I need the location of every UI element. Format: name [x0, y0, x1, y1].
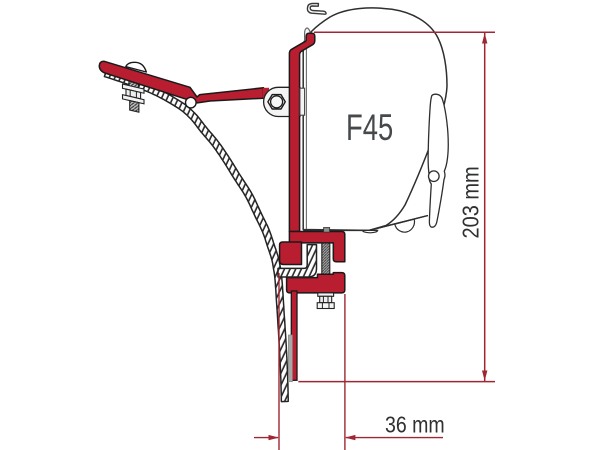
svg-text:36 mm: 36 mm	[385, 412, 445, 438]
svg-text:F45: F45	[346, 106, 393, 148]
svg-text:203 mm: 203 mm	[457, 166, 484, 238]
